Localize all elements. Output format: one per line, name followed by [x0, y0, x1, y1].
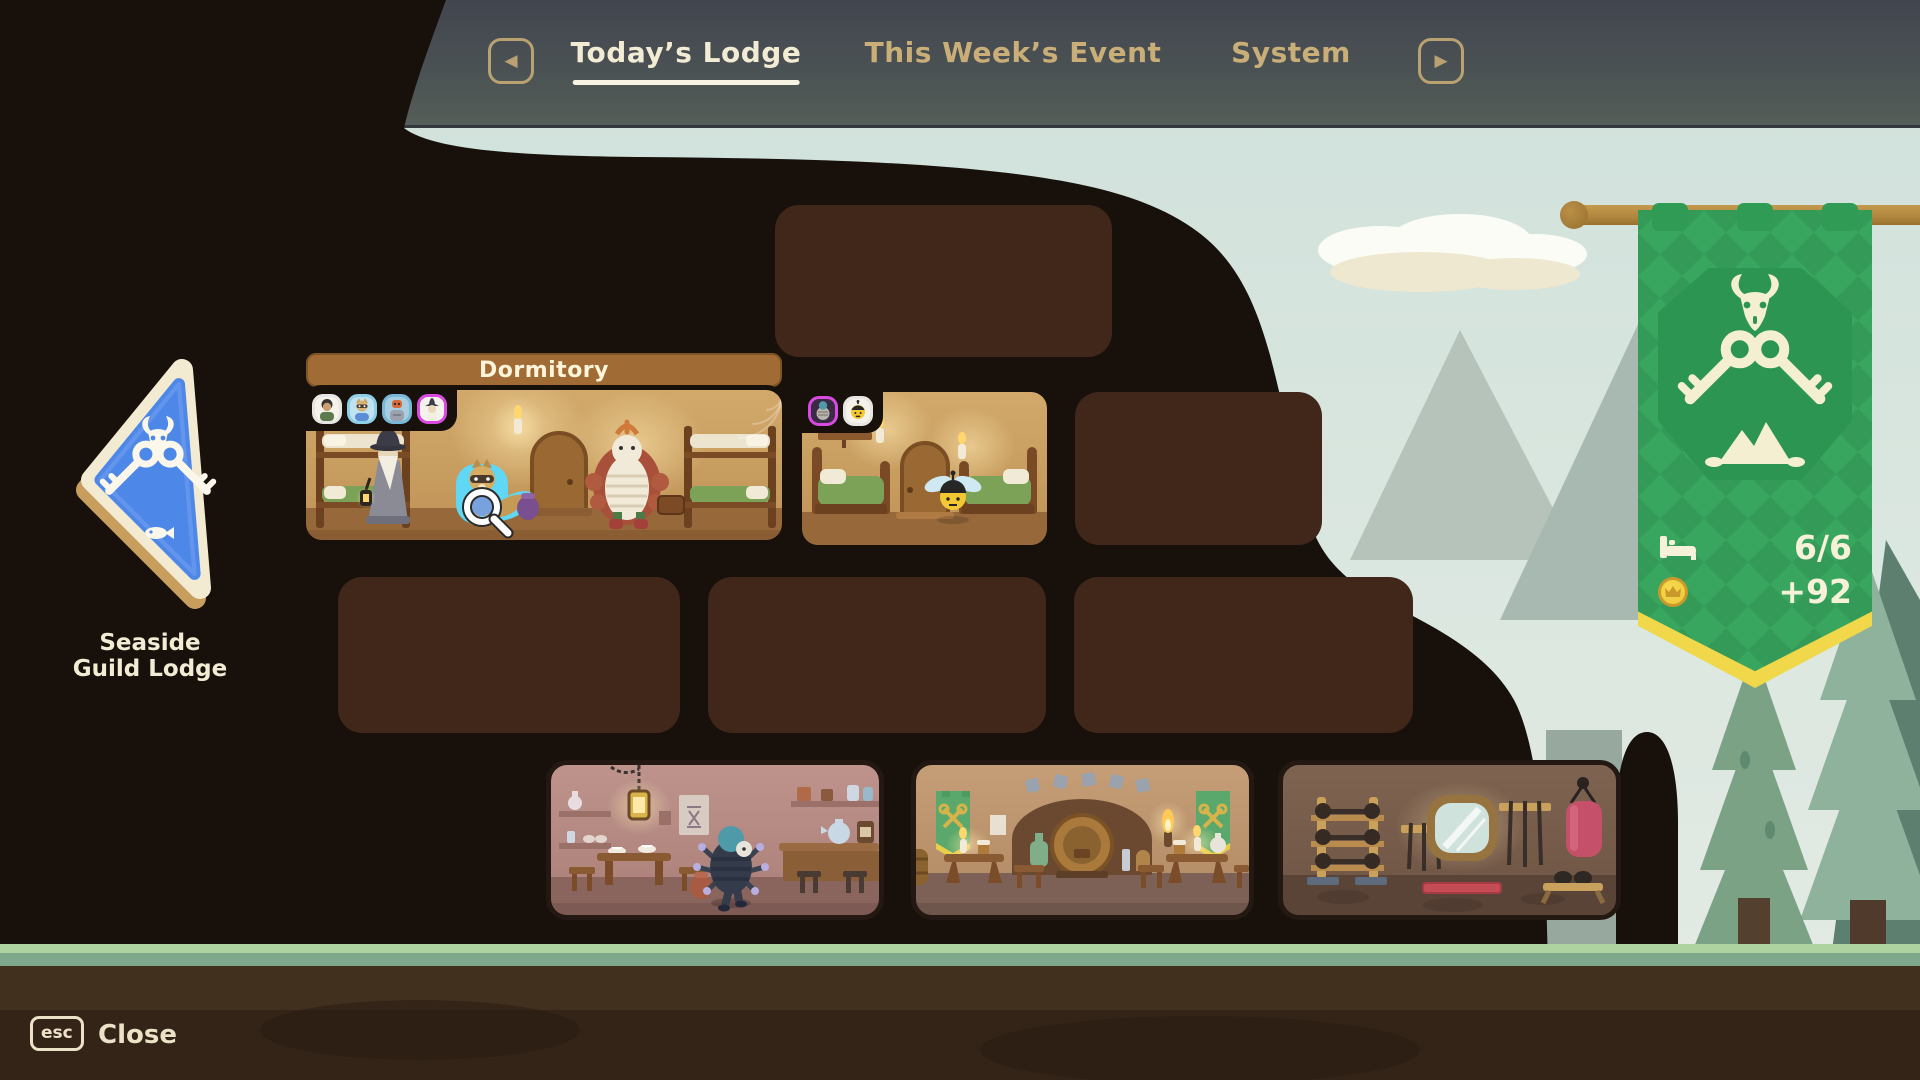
banner-beds-stat: 6/6: [1658, 528, 1852, 567]
banner-emblem: [1658, 268, 1852, 480]
banner-tab: [1652, 203, 1688, 231]
coin-icon: [1658, 577, 1688, 607]
banner-tab: [1822, 203, 1858, 231]
bed-icon: [1658, 534, 1698, 562]
guild-banner: 6/6 +92: [1638, 210, 1872, 688]
beds-value: 6/6: [1794, 528, 1852, 567]
close-button[interactable]: Close: [98, 1020, 177, 1050]
banner-goat-skull: [1731, 274, 1779, 331]
guild-badge: [70, 348, 240, 628]
guild-name: Seaside Guild Lodge: [64, 630, 236, 683]
lodge-screen: ◀ Today’s Lodge This Week’s Event System…: [0, 0, 1920, 1080]
esc-key-hint[interactable]: esc: [30, 1016, 84, 1051]
banner-crossed-keys: [1680, 329, 1831, 409]
coins-value: +92: [1778, 572, 1852, 611]
banner-tab: [1737, 203, 1773, 231]
banner-mountain: [1705, 422, 1805, 467]
banner-coins-stat: +92: [1658, 572, 1852, 611]
